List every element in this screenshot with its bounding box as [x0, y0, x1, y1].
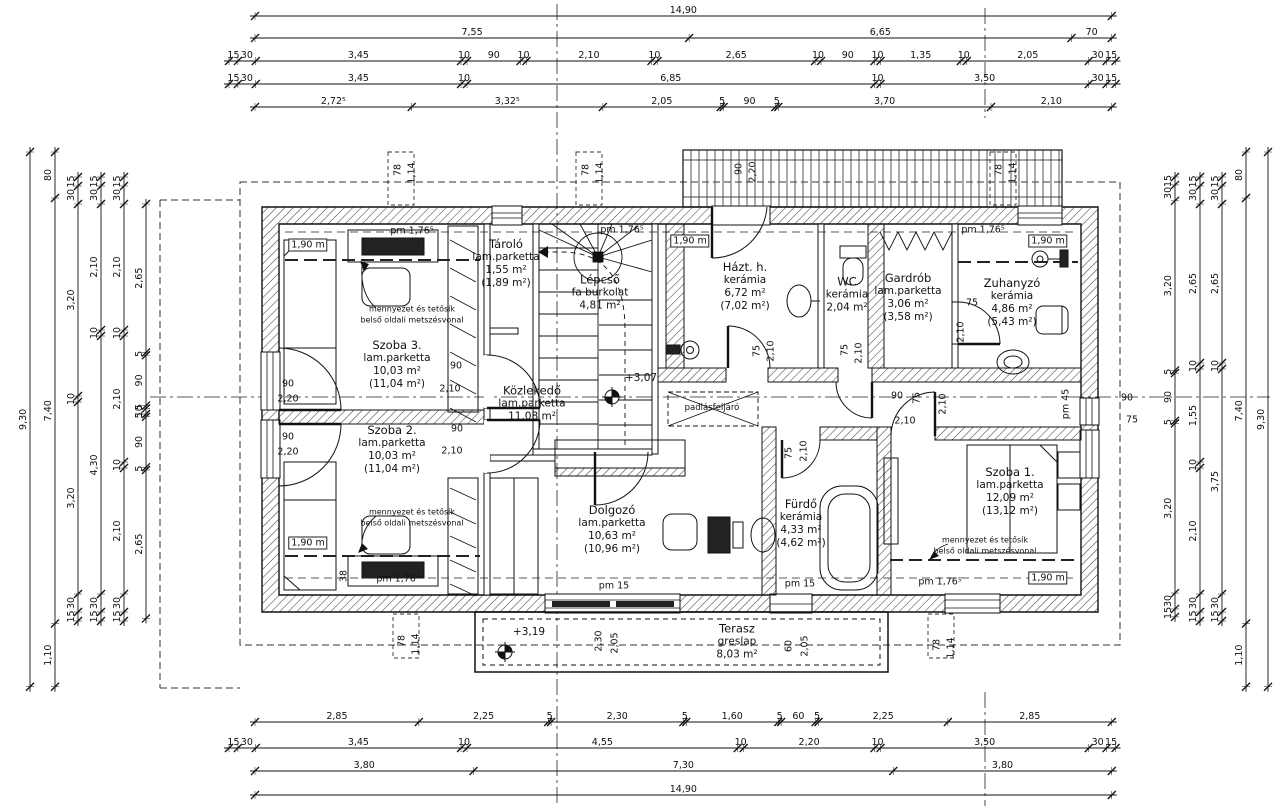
dim-label: 30: [112, 189, 123, 201]
dim-label: 1,10: [43, 645, 54, 666]
dim-label: 15: [66, 175, 77, 187]
dim-label: 10: [112, 327, 123, 339]
dim-label: 30: [1163, 187, 1174, 199]
dim-label: 7,40: [1234, 400, 1245, 421]
dim-label: 15: [1188, 175, 1199, 187]
dim-label: 90: [842, 50, 854, 61]
dim-label: 2,10: [578, 50, 599, 61]
dim-label: 30: [89, 597, 100, 609]
dim-label: 30: [1188, 189, 1199, 201]
dim-label: 15: [227, 73, 239, 84]
dim-label: 1,60: [722, 711, 743, 722]
dim-label: 1,35: [910, 50, 931, 61]
dim-label: 60: [792, 711, 804, 722]
dim-label: 9,30: [1256, 409, 1267, 430]
dim-label: 90: [488, 50, 500, 61]
dim-label: 3,70: [874, 96, 895, 107]
dim-label: 3,20: [1163, 498, 1174, 519]
dim-label: 10: [1188, 459, 1199, 471]
dim-label: 30: [1188, 597, 1199, 609]
dim-label: 5: [547, 711, 553, 722]
dormer-deck: [683, 150, 1062, 207]
dim-label: 10: [1210, 360, 1221, 372]
dim-label: 15: [227, 50, 239, 61]
dim-label: 1,55: [1188, 405, 1199, 426]
dim-label: 4,55: [592, 737, 613, 748]
dim-label: 10: [648, 50, 660, 61]
axis-lines: [150, 4, 1270, 806]
dim-label: 3,80: [992, 760, 1013, 771]
dim-label: 2,05: [651, 96, 672, 107]
dim-label: 30: [1092, 50, 1104, 61]
dim-label: 5: [777, 711, 783, 722]
dim-label: 90: [1163, 391, 1174, 403]
dim-label: 10: [958, 50, 970, 61]
dim-label: 5: [774, 96, 780, 107]
dim-label: 14,90: [670, 784, 697, 795]
dim-label: 90: [134, 436, 145, 448]
stairs: [538, 224, 652, 449]
dim-label: 3,50: [974, 73, 995, 84]
dim-label: 15: [1163, 175, 1174, 187]
dim-label: 3,20: [1163, 275, 1174, 296]
dim-label: 10: [112, 459, 123, 471]
dim-label: 15: [89, 175, 100, 187]
dim-label: 15: [1210, 610, 1221, 622]
dim-label: 2,65: [726, 50, 747, 61]
dim-label: 4,30: [89, 454, 100, 475]
dim-label: 2,10: [1188, 520, 1199, 541]
dim-label: 5: [134, 412, 145, 418]
dim-label: 15: [1210, 175, 1221, 187]
dim-label: 3,32⁵: [495, 96, 520, 107]
dim-label: 10: [66, 393, 77, 405]
dim-label: 90: [743, 96, 755, 107]
dim-label: 5: [682, 711, 688, 722]
dim-label: 14,90: [670, 5, 697, 16]
dim-label: 15: [1105, 737, 1117, 748]
dim-label: 10: [872, 50, 884, 61]
dim-label: 2,30: [607, 711, 628, 722]
dim-label: 2,25: [873, 711, 894, 722]
dim-label: 5: [719, 96, 725, 107]
dim-label: 15: [1188, 610, 1199, 622]
dim-label: 2,10: [1041, 96, 1062, 107]
dim-label: 2,10: [112, 256, 123, 277]
interior-structural-walls: [279, 224, 1081, 595]
dim-label: 10: [872, 737, 884, 748]
dim-label: 15: [227, 737, 239, 748]
dim-label: 30: [1163, 595, 1174, 607]
dim-label: 2,10: [112, 388, 123, 409]
dim-label: 3,45: [348, 737, 369, 748]
dim-label: 6,65: [870, 27, 891, 38]
dim-label: 15: [112, 175, 123, 187]
dim-label: 1,10: [1234, 645, 1245, 666]
dim-label: 2,85: [326, 711, 347, 722]
dim-label: 15: [1163, 607, 1174, 619]
dim-label: 10: [1188, 360, 1199, 372]
dim-label: 2,65: [1188, 273, 1199, 294]
dim-label: 3,50: [974, 737, 995, 748]
dim-label: 2,10: [89, 256, 100, 277]
dim-label: 2,65: [1210, 273, 1221, 294]
dim-label: 10: [735, 737, 747, 748]
dim-label: 10: [517, 50, 529, 61]
floor-plan-canvas: 14,907,556,657015303,451090102,10102,651…: [0, 0, 1280, 810]
dim-label: 30: [112, 597, 123, 609]
dim-label: 15: [66, 610, 77, 622]
dim-label: 30: [241, 737, 253, 748]
floor-plan-drawing: 14,907,556,657015303,451090102,10102,651…: [0, 0, 1280, 810]
dim-label: 30: [66, 189, 77, 201]
dim-label: 6,85: [660, 73, 681, 84]
terrace: [475, 612, 888, 672]
dim-label: 15: [1105, 73, 1117, 84]
dim-label: 2,65: [134, 534, 145, 555]
dim-label: 3,80: [354, 760, 375, 771]
dim-label: 2,65: [134, 268, 145, 289]
dim-label: 7,30: [673, 760, 694, 771]
dim-label: 2,25: [473, 711, 494, 722]
dim-label: 3,20: [66, 289, 77, 310]
dim-label: 5: [1163, 419, 1174, 425]
dim-label: 30: [66, 597, 77, 609]
dim-label: 30: [1092, 73, 1104, 84]
dim-label: 3,45: [348, 73, 369, 84]
dim-label: 30: [241, 50, 253, 61]
dim-label: 30: [1092, 737, 1104, 748]
dim-label: 7,55: [461, 27, 482, 38]
dim-label: 30: [1210, 189, 1221, 201]
dim-label: 80: [43, 169, 54, 181]
dim-label: 15: [112, 610, 123, 622]
dim-label: 15: [1105, 50, 1117, 61]
dim-label: 70: [1086, 27, 1098, 38]
dim-label: 3,75: [1210, 471, 1221, 492]
dim-label: 5: [1163, 369, 1174, 375]
dim-label: 15: [89, 610, 100, 622]
dim-label: 30: [241, 73, 253, 84]
dim-label: 10: [872, 73, 884, 84]
dim-label: 10: [812, 50, 824, 61]
dim-label: 10: [89, 327, 100, 339]
dim-label: 80: [1234, 169, 1245, 181]
dim-label: 3,20: [66, 487, 77, 508]
dim-label: 10: [458, 737, 470, 748]
dim-label: 2,10: [112, 520, 123, 541]
dim-label: 2,85: [1019, 711, 1040, 722]
dim-label: 10: [458, 50, 470, 61]
dim-label: 5: [134, 466, 145, 472]
dim-label: 10: [458, 73, 470, 84]
dim-label: 7,40: [43, 400, 54, 421]
dim-label: 5: [134, 351, 145, 357]
dim-label: 9,30: [18, 409, 29, 430]
dim-label: 5: [814, 711, 820, 722]
dim-label: 3,45: [348, 50, 369, 61]
dim-label: 2,72⁵: [321, 96, 346, 107]
dim-label: 90: [134, 374, 145, 386]
dim-label: 30: [1210, 597, 1221, 609]
dim-label: 30: [89, 189, 100, 201]
dim-label: 2,05: [1017, 50, 1038, 61]
dim-label: 2,20: [799, 737, 820, 748]
